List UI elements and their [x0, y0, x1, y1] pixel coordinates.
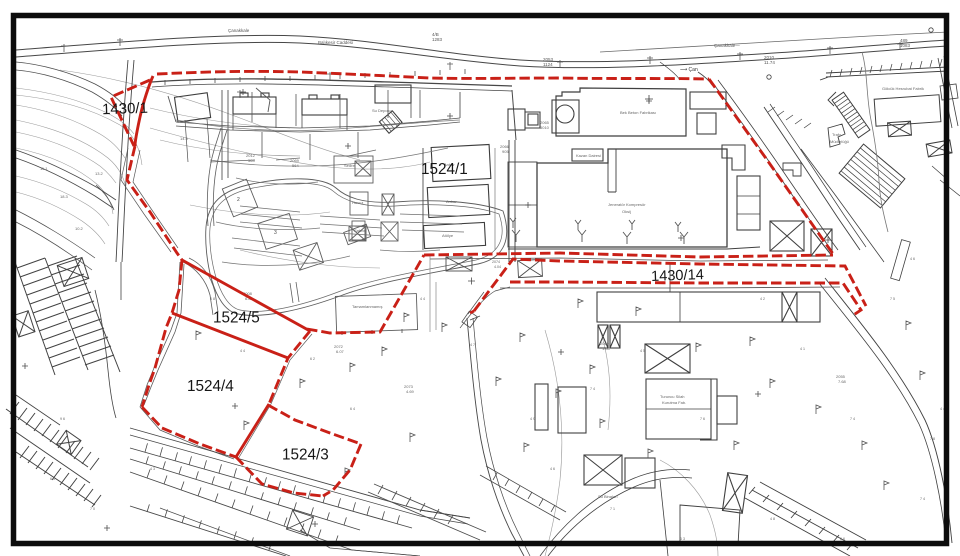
svg-text:1524/4: 1524/4 — [187, 378, 234, 395]
svg-text:Tamamlanmamış: Tamamlanmamış — [352, 304, 382, 309]
svg-text:4 8: 4 8 — [770, 517, 775, 521]
svg-text:Sahne: Sahne — [354, 228, 366, 233]
svg-text:Balıkesir Caddesi: Balıkesir Caddesi — [318, 40, 353, 45]
svg-text:7 0: 7 0 — [90, 507, 95, 511]
svg-text:6 2: 6 2 — [310, 357, 315, 361]
svg-text:7 4: 7 4 — [590, 387, 595, 391]
svg-text:4 6: 4 6 — [910, 257, 915, 261]
svg-text:14.5: 14.5 — [180, 136, 189, 141]
svg-text:564: 564 — [248, 158, 255, 163]
svg-text:7.68: 7.68 — [838, 379, 847, 384]
svg-text:7 4: 7 4 — [920, 497, 925, 501]
svg-text:7 4: 7 4 — [850, 417, 855, 421]
svg-text:1430/14: 1430/14 — [651, 267, 704, 285]
svg-text:1524/1: 1524/1 — [421, 161, 468, 178]
svg-text:13.2: 13.2 — [95, 171, 104, 176]
svg-text:1283: 1283 — [432, 37, 443, 42]
svg-text:2074: 2074 — [492, 260, 500, 264]
svg-text:Havuz: Havuz — [352, 200, 363, 205]
svg-text:Çanakkale—: Çanakkale— — [714, 43, 740, 48]
svg-text:Çanakkale: Çanakkale — [228, 28, 250, 33]
svg-text:7 8: 7 8 — [930, 437, 935, 441]
svg-text:Su Binaları: Su Binaları — [598, 494, 618, 499]
svg-text:7 5: 7 5 — [890, 297, 895, 301]
svg-text:Trafo: Trafo — [832, 132, 842, 137]
svg-text:5010: 5010 — [540, 125, 550, 130]
svg-text:Su Deposu: Su Deposu — [372, 108, 392, 113]
svg-text:905: 905 — [502, 149, 509, 154]
svg-text:Müdürlüğü: Müdürlüğü — [830, 139, 849, 144]
svg-text:4.04: 4.04 — [494, 265, 501, 269]
svg-text:Kurutma Fab.: Kurutma Fab. — [662, 400, 686, 405]
svg-text:Kazan Dairesi: Kazan Dairesi — [576, 153, 601, 158]
svg-text:Anbar: Anbar — [446, 199, 457, 204]
svg-text:Oksij: Oksij — [622, 209, 631, 214]
svg-text:1430/1: 1430/1 — [102, 100, 148, 119]
svg-text:6 6: 6 6 — [840, 537, 845, 541]
svg-text:⟶ Çan: ⟶ Çan — [680, 67, 698, 73]
svg-text:4 6: 4 6 — [550, 467, 555, 471]
svg-text:Bek Beton Fabrikası: Bek Beton Fabrikası — [620, 110, 656, 115]
svg-text:4.69: 4.69 — [406, 389, 415, 394]
svg-text:2: 2 — [237, 197, 240, 203]
svg-text:6 8: 6 8 — [210, 297, 215, 301]
svg-text:6 4: 6 4 — [350, 407, 355, 411]
svg-text:10.2: 10.2 — [75, 226, 84, 231]
svg-text:4 4: 4 4 — [240, 349, 245, 353]
svg-text:9 6: 9 6 — [60, 417, 65, 421]
svg-text:4 3: 4 3 — [150, 467, 155, 471]
svg-text:564: 564 — [292, 163, 299, 168]
svg-text:6 1: 6 1 — [50, 477, 55, 481]
svg-text:1124: 1124 — [543, 62, 553, 67]
svg-text:4 1: 4 1 — [800, 347, 805, 351]
svg-text:11.74: 11.74 — [764, 60, 775, 65]
svg-text:18.3: 18.3 — [60, 194, 69, 199]
svg-text:Gölcük Hesrubat Fabrik: Gölcük Hesrubat Fabrik — [882, 86, 924, 91]
svg-text:6.07: 6.07 — [336, 349, 345, 354]
svg-text:4 4: 4 4 — [420, 297, 425, 301]
svg-text:1083: 1083 — [900, 43, 911, 48]
svg-text:1524/3: 1524/3 — [282, 447, 329, 464]
svg-text:11.1: 11.1 — [40, 166, 48, 171]
svg-text:Jeneratör Kompresör: Jeneratör Kompresör — [608, 202, 646, 207]
svg-text:Sedre: Sedre — [344, 163, 355, 168]
svg-text:4 2: 4 2 — [760, 297, 765, 301]
svg-text:1524/5: 1524/5 — [213, 310, 260, 327]
svg-text:3: 3 — [274, 230, 277, 236]
svg-text:4 9: 4 9 — [530, 417, 535, 421]
svg-text:4 5: 4 5 — [640, 349, 645, 353]
svg-text:Atölye: Atölye — [442, 233, 454, 238]
svg-text:4 7: 4 7 — [470, 343, 475, 347]
svg-text:Turuncu Silah: Turuncu Silah — [660, 394, 685, 399]
svg-text:7 1: 7 1 — [610, 507, 615, 511]
svg-text:1.04: 1.04 — [602, 346, 611, 351]
svg-text:6 3: 6 3 — [680, 537, 685, 541]
svg-text:7 6: 7 6 — [700, 417, 705, 421]
